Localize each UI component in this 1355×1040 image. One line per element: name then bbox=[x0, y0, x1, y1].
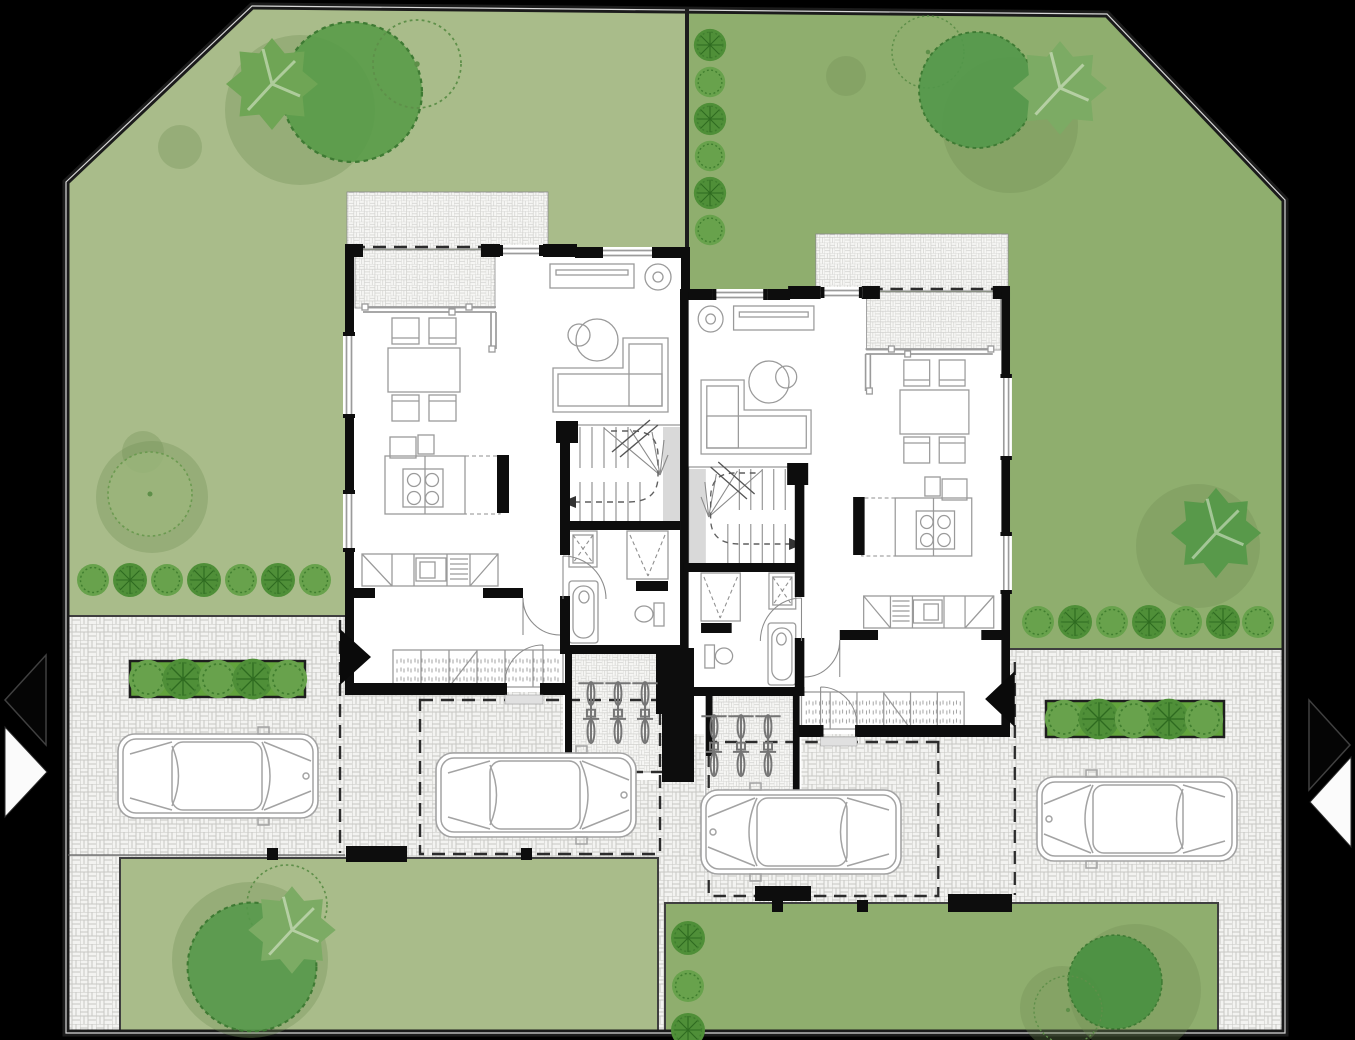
site-plan: Ground-floor architectural site plan — t… bbox=[0, 0, 1355, 1040]
bike-rack-left bbox=[578, 682, 657, 743]
tree-canopy bbox=[1068, 935, 1162, 1029]
tree-jagged bbox=[1171, 488, 1261, 578]
shed-party-wall bbox=[662, 648, 694, 782]
tree-jagged bbox=[226, 38, 318, 130]
hedge-planter-right bbox=[1045, 699, 1224, 740]
tree-jagged bbox=[1013, 41, 1107, 135]
bike-rack-right bbox=[701, 715, 780, 776]
car-left-driveway bbox=[118, 727, 318, 825]
hedge-planter-left bbox=[129, 659, 307, 700]
tree-outline-filled bbox=[108, 452, 192, 536]
site-plan-stage: Ground-floor architectural site plan — t… bbox=[0, 0, 1355, 1040]
tree-jagged bbox=[248, 886, 335, 973]
car-right-carport bbox=[701, 783, 901, 881]
car-right-driveway bbox=[1037, 770, 1237, 868]
car-left-carport bbox=[436, 746, 636, 844]
shrubs-bottom-right-lawn bbox=[671, 921, 705, 1040]
